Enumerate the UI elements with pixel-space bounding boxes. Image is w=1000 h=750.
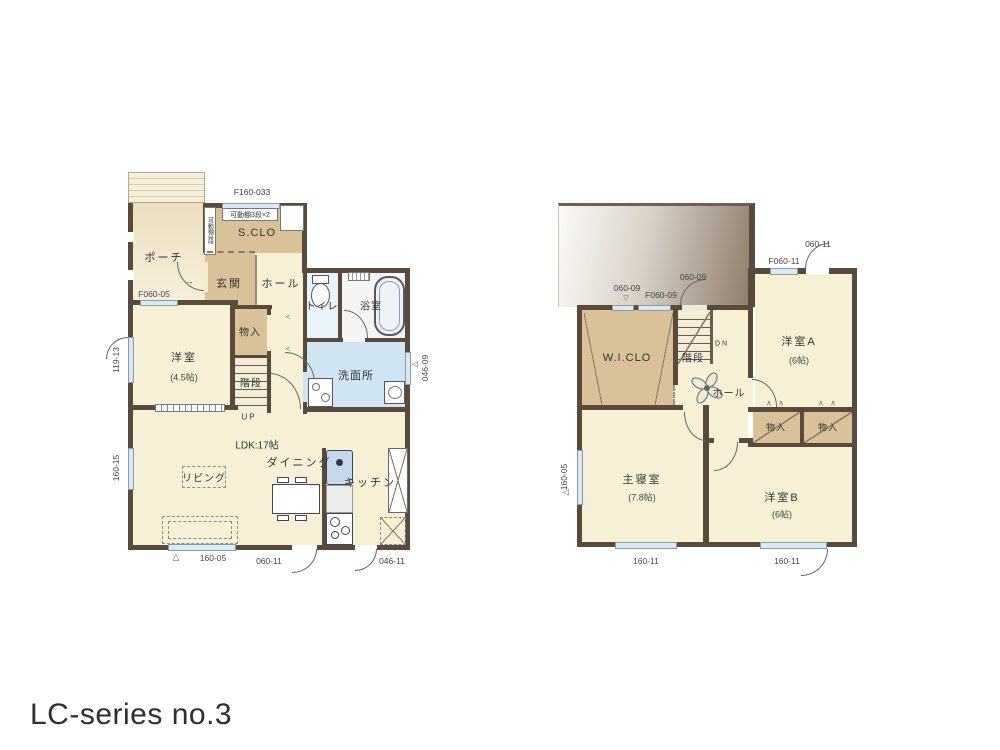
room-label-toilet: トイレ: [306, 298, 339, 313]
stair-wall: [710, 310, 713, 364]
window-swing-arc-2f: [801, 549, 828, 576]
door-gap: [682, 305, 707, 311]
wall: [338, 270, 342, 340]
room-label-bedroom: 洋室: [171, 349, 197, 365]
room-label-wiclo: W.I.CLO: [603, 352, 652, 364]
window-160-05: [168, 544, 236, 551]
room-label-hall: ホール: [262, 275, 301, 291]
room-size-bedroom: (4.5帖): [170, 371, 198, 384]
fridge-outline: [380, 517, 406, 545]
room-label-bedroomA: 洋室A: [781, 333, 816, 349]
room-label-master: 主寝室: [623, 471, 662, 487]
window-160-11-right: [760, 542, 827, 549]
window-046-09: [405, 352, 411, 385]
room-size-bedroomA: (6帖): [789, 354, 809, 367]
room-label-storage2f: 物入: [818, 421, 838, 434]
door-arc-bottom-center: [292, 549, 317, 573]
fold-door-mark: ∧ ∧: [818, 399, 838, 408]
window-160-05-2f: [577, 450, 583, 505]
dim-top-window: F160-033: [234, 187, 270, 197]
plan-graphic: [336, 459, 343, 466]
window-119-13: [128, 337, 134, 383]
dim-bottom-door-right: 046-11: [379, 556, 405, 566]
hanger-pipe: [584, 313, 602, 405]
floorplan-page: 可動棚3段×2 可動棚3段 ポーチ: [0, 0, 1000, 750]
room-label-stairs: 階段: [240, 375, 262, 390]
shoe-shelf: [280, 205, 304, 231]
room-label-washroom: 洗面所: [338, 367, 374, 383]
room-label-living: リビング: [182, 470, 226, 485]
dim-left-window-2f: 160-05: [559, 464, 569, 490]
plan-graphic: [379, 281, 400, 331]
dim-a-door: 060-11: [805, 239, 831, 249]
wall-gap: [673, 385, 678, 405]
plan-graphic: [331, 531, 339, 539]
sliding-opening: [207, 251, 255, 253]
shelf-box-side: 可動棚3段: [204, 207, 216, 255]
entry-arrow: →: [184, 277, 196, 288]
wall: [577, 405, 683, 410]
room-label-sclo: S.CLO: [238, 227, 276, 239]
fold-door-mark: <: [286, 313, 293, 322]
porch-steps: [128, 172, 205, 203]
wall-gap: [343, 338, 365, 342]
dim-right-window: 046-09: [420, 355, 430, 381]
room-label-porch: ポーチ: [145, 249, 184, 265]
dim-porch-window: F060-05: [138, 289, 170, 299]
hanger-pipe: [655, 313, 673, 405]
room-label-ldk: LDK:17帖: [235, 437, 278, 452]
room-size-master: (7.8帖): [628, 491, 656, 504]
door-arc-bottom-right: [355, 549, 377, 571]
dim-a-window: F060-11: [768, 256, 799, 266]
wall: [235, 355, 267, 358]
shelf-box: 可動棚3段×2: [222, 208, 278, 221]
wall: [303, 407, 405, 412]
dim-top-door: 060-09: [680, 272, 706, 282]
dining-chair: [277, 515, 289, 521]
dim-top-window1: 060-09: [614, 283, 640, 293]
dining-chair: [277, 477, 289, 483]
wall-gap: [127, 270, 134, 280]
shutter-marker: ◁: [563, 488, 571, 497]
wall-gap: [267, 315, 271, 351]
plan-graphic: [330, 517, 340, 527]
plan-graphic: [168, 521, 232, 539]
window-f060-09: [638, 305, 671, 311]
sliding-door-track: [155, 404, 225, 412]
stairs-dn-label: DN: [715, 341, 729, 348]
wall: [748, 443, 857, 447]
dim-bottom-window: 160-05: [200, 553, 226, 563]
sofa-outline: [162, 516, 238, 544]
window-160-15: [128, 448, 134, 490]
dim-bottom-door-center: 060-11: [256, 556, 282, 566]
shelf-note: 可動棚3段×2: [230, 210, 270, 220]
room-label-stairs-2f: 階段: [682, 350, 704, 365]
wall: [748, 268, 753, 383]
shutter-marker: △: [173, 552, 182, 563]
shelf-note-side: 可動棚3段: [206, 217, 215, 244]
plan-graphic: [388, 386, 402, 399]
wall: [577, 305, 582, 547]
dim-top-window2: F060-09: [645, 290, 677, 300]
stove-icon: [326, 513, 353, 545]
window-060-09: [612, 305, 634, 311]
window-f060-11: [770, 268, 798, 275]
vanity-icon: [384, 381, 405, 404]
window-f060-05: [140, 300, 178, 306]
room-label-dining: ダイニング: [267, 454, 332, 470]
shutter-marker: ▽: [623, 294, 630, 302]
dim-left-upper: 119-13: [111, 347, 121, 373]
shutter-marker: ◁: [412, 360, 420, 369]
room-label-genkan: 玄関: [216, 275, 242, 291]
room-label-storage2f: 物入: [766, 421, 786, 434]
plan-graphic: [341, 526, 350, 535]
wall: [230, 305, 272, 309]
plan-graphic: [312, 383, 320, 391]
plan-graphic: [381, 518, 405, 544]
room-label-storage: 物入: [239, 324, 261, 339]
wall-gap: [127, 232, 134, 242]
door-gap: [806, 268, 829, 275]
washer-icon: [308, 378, 333, 407]
dim-bottom-window1-2f: 160-11: [633, 556, 659, 566]
fold-door-mark: ∧ ∧: [766, 399, 786, 408]
step-edge: [255, 255, 257, 305]
plan-graphic: [321, 393, 330, 402]
room-label-hall-2f: ホール: [713, 385, 746, 400]
dining-chair: [295, 477, 307, 483]
room-size-bedroomB: (6帖): [772, 508, 792, 521]
room-label-bath: 浴室: [360, 298, 382, 313]
bath-counter: [348, 272, 370, 281]
dining-chair: [295, 515, 307, 521]
window-160-11-left: [615, 542, 677, 549]
wall: [800, 412, 804, 443]
page-title: LC-series no.3: [30, 698, 232, 732]
stairs-up-label: UP: [241, 413, 256, 422]
dining-table: [272, 484, 320, 514]
dim-left-lower: 160-15: [111, 455, 121, 481]
wall: [750, 268, 857, 274]
dim-bottom-window2-2f: 160-11: [774, 556, 800, 566]
wall: [128, 203, 133, 303]
room-label-bedroomB: 洋室B: [764, 489, 799, 505]
fold-door-mark: <: [286, 345, 293, 354]
room-label-kitchen: キッチン: [344, 474, 396, 490]
